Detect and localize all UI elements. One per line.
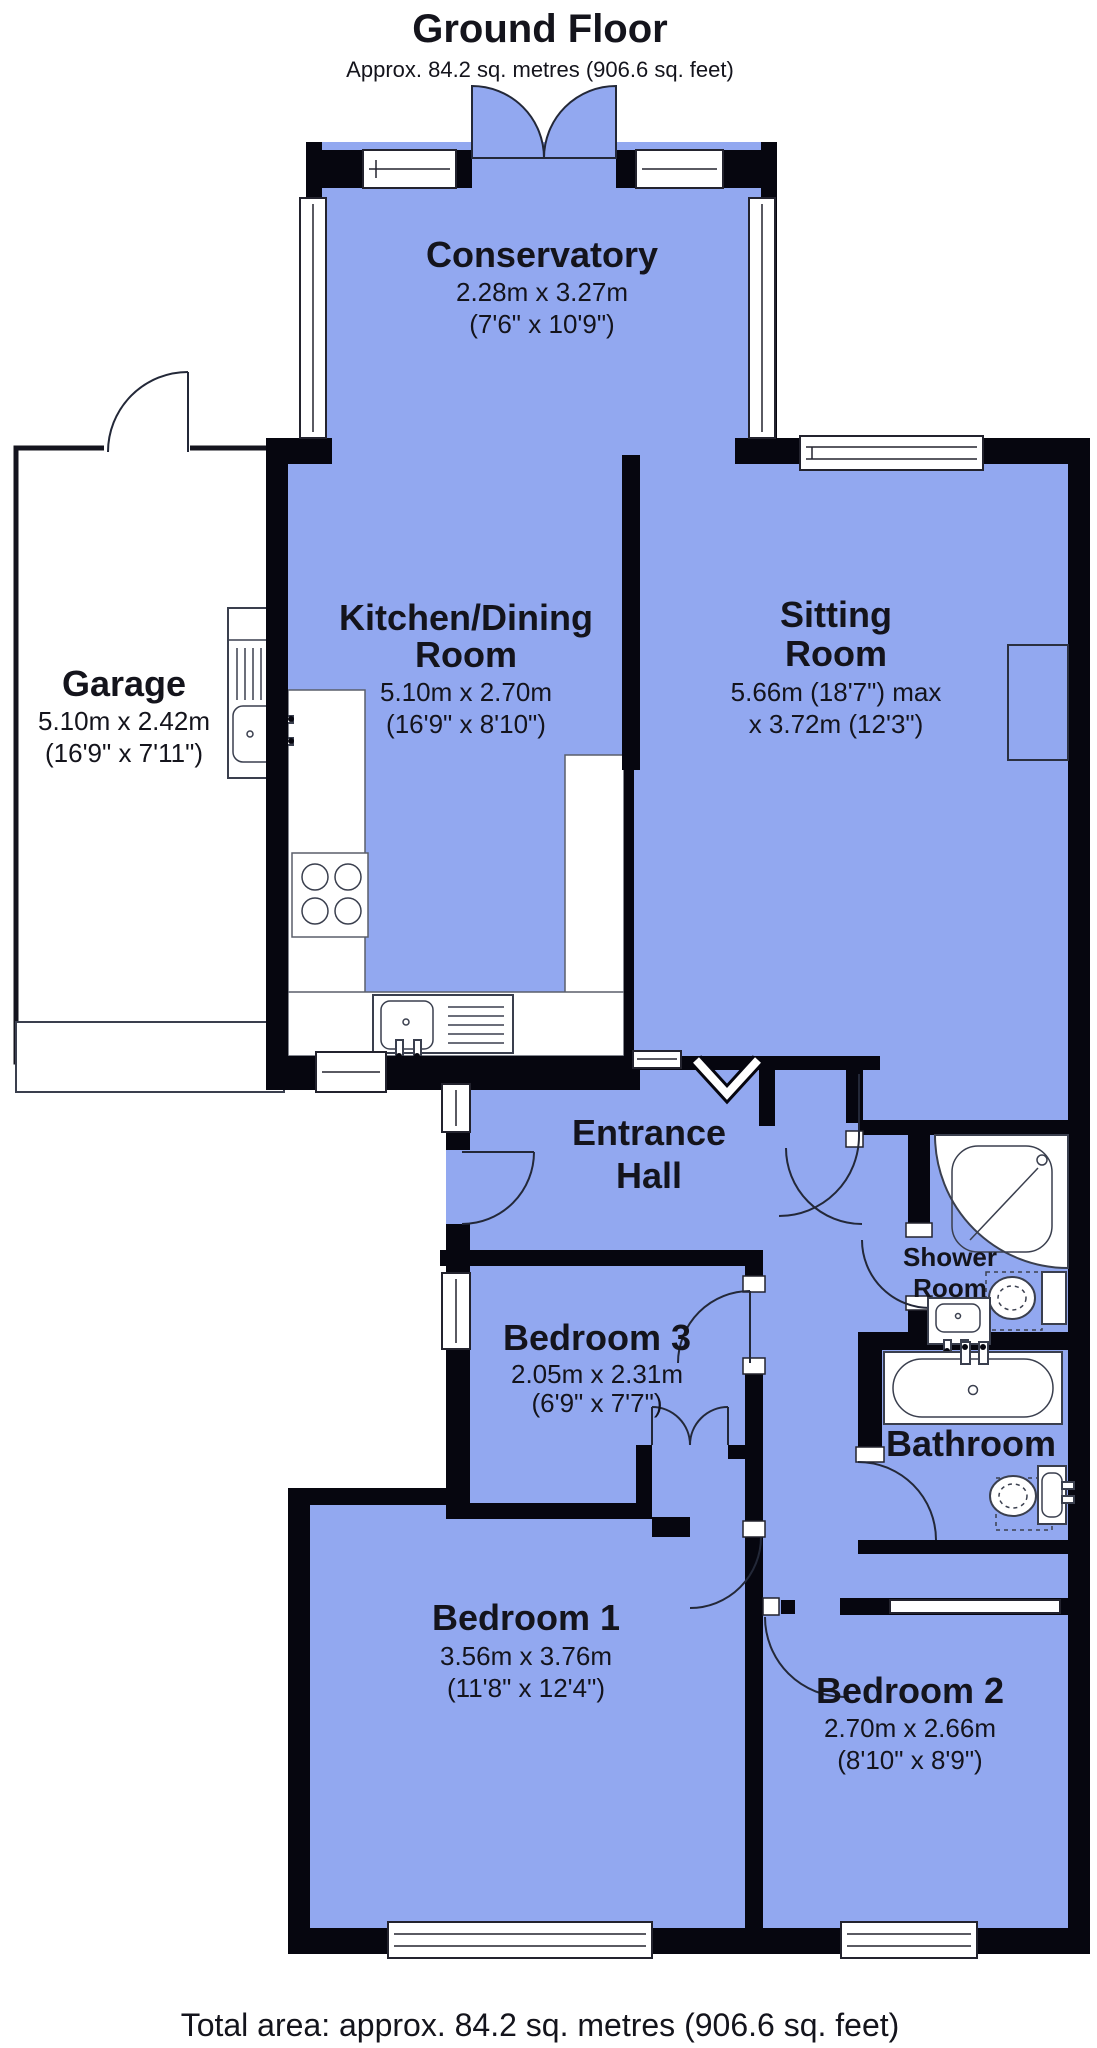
svg-text:Bedroom 3: Bedroom 3: [503, 1317, 691, 1358]
label-shower: Shower Room: [903, 1242, 997, 1303]
svg-text:(16'9" x 8'10"): (16'9" x 8'10"): [386, 709, 546, 739]
kitchen-sink-icon: [373, 995, 513, 1059]
bathtub-icon: [884, 1342, 1062, 1424]
svg-text:Shower: Shower: [903, 1242, 997, 1272]
svg-text:Room: Room: [913, 1273, 987, 1303]
svg-text:(11'8" x 12'4"): (11'8" x 12'4"): [447, 1673, 605, 1703]
garage-door-gap: [104, 442, 190, 455]
svg-text:x 3.72m (12'3"): x 3.72m (12'3"): [749, 709, 924, 739]
plan-header: Ground Floor Approx. 84.2 sq. metres (90…: [346, 7, 734, 82]
label-bed1: Bedroom 1 3.56m x 3.76m (11'8" x 12'4"): [432, 1597, 620, 1703]
svg-text:2.05m x 2.31m: 2.05m x 2.31m: [511, 1359, 683, 1389]
svg-text:(7'6" x 10'9"): (7'6" x 10'9"): [469, 309, 614, 339]
svg-text:3.56m x 3.76m: 3.56m x 3.76m: [440, 1641, 612, 1671]
window-kitchen-front: [316, 1052, 386, 1092]
svg-text:Hall: Hall: [616, 1155, 682, 1196]
svg-text:5.66m (18'7") max: 5.66m (18'7") max: [731, 677, 942, 707]
svg-text:Sitting: Sitting: [780, 594, 892, 635]
hob-icon: [292, 853, 368, 937]
svg-text:2.28m x 3.27m: 2.28m x 3.27m: [456, 277, 628, 307]
garage-side-door-arc: [108, 372, 188, 452]
garage-updoor: [16, 1022, 284, 1092]
bed2-wardrobe-band: [890, 1600, 1060, 1613]
window-front-door-side: [633, 1051, 681, 1068]
total-area-footer: Total area: approx. 84.2 sq. metres (906…: [181, 2007, 900, 2043]
svg-text:Conservatory: Conservatory: [426, 234, 658, 275]
svg-text:Garage: Garage: [62, 663, 186, 704]
window-conservatory-north-left: [363, 150, 456, 188]
svg-text:2.70m x 2.66m: 2.70m x 2.66m: [824, 1713, 996, 1743]
label-garage: Garage 5.10m x 2.42m (16'9" x 7'11"): [38, 663, 210, 768]
window-bed3-west: [442, 1273, 470, 1349]
svg-text:5.10m x 2.70m: 5.10m x 2.70m: [380, 677, 552, 707]
svg-text:Entrance: Entrance: [572, 1112, 726, 1153]
french-door-leaf-left: [472, 86, 544, 158]
page-title: Ground Floor: [412, 7, 668, 51]
svg-text:(16'9" x 7'11"): (16'9" x 7'11"): [45, 738, 203, 768]
svg-text:(8'10" x 8'9"): (8'10" x 8'9"): [837, 1745, 982, 1775]
svg-text:Room: Room: [785, 633, 887, 674]
page-subtitle: Approx. 84.2 sq. metres (906.6 sq. feet): [346, 57, 734, 82]
floorplan-page: Ground Floor Approx. 84.2 sq. metres (90…: [0, 0, 1097, 2048]
label-bathroom: Bathroom: [886, 1423, 1056, 1464]
svg-text:Room: Room: [415, 634, 517, 675]
label-bed2: Bedroom 2 2.70m x 2.66m (8'10" x 8'9"): [816, 1670, 1004, 1775]
svg-text:Bedroom 2: Bedroom 2: [816, 1670, 1004, 1711]
svg-text:(6'9" x 7'7"): (6'9" x 7'7"): [532, 1388, 663, 1418]
window-conservatory-east: [749, 198, 775, 438]
svg-text:Bedroom 1: Bedroom 1: [432, 1597, 620, 1638]
window-hall-west: [442, 1084, 470, 1132]
svg-text:Kitchen/Dining: Kitchen/Dining: [339, 597, 593, 638]
window-bed2-south: [841, 1922, 977, 1958]
window-conservatory-north-right: [636, 150, 723, 188]
window-conservatory-west: [300, 198, 326, 438]
french-door-leaf-right: [544, 86, 616, 158]
window-bed1-south: [388, 1922, 652, 1958]
window-sitting-north: [800, 436, 983, 470]
svg-text:5.10m x 2.42m: 5.10m x 2.42m: [38, 706, 210, 736]
